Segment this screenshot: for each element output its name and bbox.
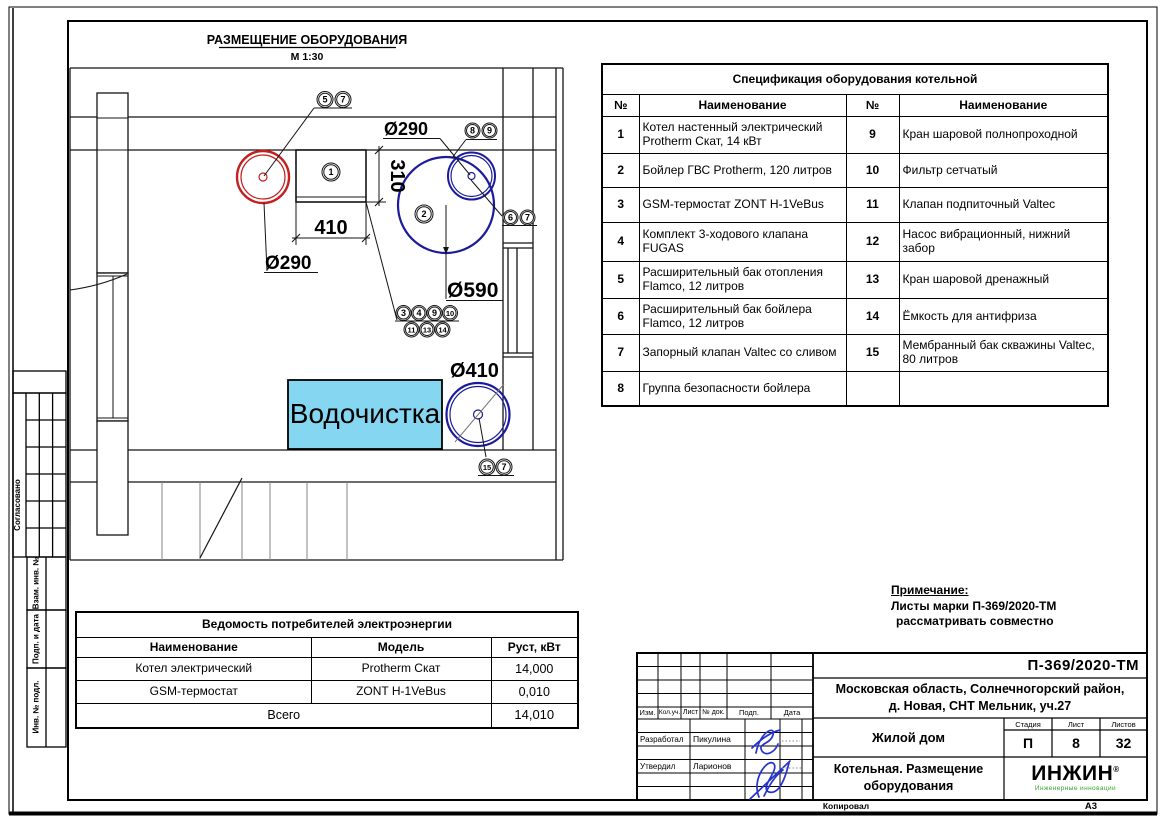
spec-table-header-row: № Наименование № Наименование — [602, 95, 1108, 117]
spec-col-num2: № — [846, 95, 899, 117]
logo-text: ИНЖИН — [1031, 762, 1113, 785]
balloon-label: 3 — [401, 308, 406, 318]
format-label: А3 — [1076, 801, 1106, 812]
developed-name: Пикулина — [690, 733, 744, 746]
spec-table-title: Спецификация оборудования котельной — [602, 64, 1108, 95]
rev-col-doc: № док. — [700, 707, 727, 719]
spec-num: 14 — [846, 299, 899, 335]
rev-col-koluch: Кол.уч. — [658, 707, 681, 719]
spec-num: 5 — [602, 262, 639, 299]
copied-label: Копировал — [796, 801, 896, 812]
balloon-label: 14 — [438, 326, 447, 335]
approved-label: Утвердил — [638, 760, 689, 773]
stairs — [162, 478, 347, 560]
balloon-label: 2 — [421, 209, 426, 219]
strip-label-soglasovano: Согласовано — [13, 479, 22, 531]
spec-num: 10 — [846, 154, 899, 188]
balloon-label: 7 — [340, 95, 345, 105]
table-row: 3GSM-термостат ZONT H-1VeBus11Клапан под… — [602, 188, 1108, 223]
note-title: Примечание: — [891, 583, 1121, 599]
spec-name: Расширительный бак бойлера Flamco, 12 ли… — [639, 299, 846, 335]
project-address: Московская область, Солнечногорский райо… — [813, 681, 1147, 715]
doc-number: П-369/2020-ТМ — [813, 655, 1139, 677]
power-col-model: Модель — [311, 638, 491, 658]
object-name: Жилой дом — [813, 718, 1004, 757]
plan-columns — [70, 93, 128, 535]
address-line-1: Московская область, Солнечногорский райо… — [836, 682, 1125, 696]
power-kw: 0,010 — [491, 681, 578, 704]
note-block: Примечание: Листы марки П-369/2020-ТМ ра… — [891, 583, 1121, 630]
spec-num: 7 — [602, 335, 639, 372]
spec-name: Запорный клапан Valtec со сливом — [639, 335, 846, 372]
spec-name: Фильтр сетчатый — [899, 154, 1108, 188]
plan-scale: М 1:30 — [291, 51, 324, 63]
dim-d290-top: Ø290 — [384, 119, 428, 139]
stage-value: П — [1004, 730, 1052, 757]
spec-num: 4 — [602, 223, 639, 262]
sheet-title-line-2: оборудования — [864, 779, 954, 793]
table-row: Котел электрический Protherm Скат 14,000 — [76, 658, 578, 681]
spec-num: 6 — [602, 299, 639, 335]
plan-title: РАЗМЕЩЕНИЕ ОБОРУДОВАНИЯ — [207, 33, 408, 47]
sheet-number: 8 — [1052, 730, 1100, 757]
strip-label-inv: Инв. № подл. — [32, 680, 41, 733]
spec-name: Клапан подпиточный Valtec — [899, 188, 1108, 223]
spec-col-name1: Наименование — [639, 95, 846, 117]
dim-d590: Ø590 — [447, 279, 498, 302]
signature-approved — [750, 761, 790, 799]
signature-developed — [752, 730, 780, 754]
rev-col-izm: Изм. — [637, 707, 658, 719]
power-col-kw: Руст, кВт — [491, 638, 578, 658]
balloon-label: 10 — [446, 309, 454, 318]
red-tank-circle — [237, 151, 289, 203]
balloon-label: 11 — [408, 326, 416, 335]
balloon-label: 8 — [470, 126, 475, 136]
spec-num: 13 — [846, 262, 899, 299]
balloon-label: 13 — [423, 326, 431, 335]
spec-name: Группа безопасности бойлера — [639, 372, 846, 407]
power-table-title: Ведомость потребителей электроэнергии — [76, 612, 578, 638]
power-table-header-row: Наименование Модель Руст, кВт — [76, 638, 578, 658]
spec-name: Ёмкость для антифриза — [899, 299, 1108, 335]
table-row: 7Запорный клапан Valtec со сливом15Мембр… — [602, 335, 1108, 372]
spec-num — [846, 372, 899, 407]
note-line-1: Листы марки П-369/2020-ТМ — [891, 599, 1121, 615]
balloon-label: 4 — [416, 308, 421, 318]
spec-num: 2 — [602, 154, 639, 188]
spec-num: 3 — [602, 188, 639, 223]
sheets-label: Листов — [1100, 719, 1147, 731]
strip-label-vzam: Взам. инв. № — [32, 557, 41, 610]
power-total-label: Всего — [76, 704, 491, 729]
stage-label: Стадия — [1004, 719, 1052, 731]
spec-name: Насос вибрационный, нижний забор — [899, 223, 1108, 262]
dim-d290-left: Ø290 — [265, 253, 311, 274]
company-logo: ИНЖИН® Инженерные инновации — [1004, 759, 1147, 800]
table-row: GSM-термостат ZONT H-1VeBus 0,010 — [76, 681, 578, 704]
power-kw: 14,000 — [491, 658, 578, 681]
spec-num: 15 — [846, 335, 899, 372]
table-row: 2Бойлер ГВС Protherm, 120 литров10Фильтр… — [602, 154, 1108, 188]
spec-name — [899, 372, 1108, 407]
signature-date-marks — [782, 741, 801, 768]
spec-name: GSM-термостат ZONT H-1VeBus — [639, 188, 846, 223]
water-treatment-label: Водочистка — [290, 398, 441, 429]
power-col-name: Наименование — [76, 638, 311, 658]
logo-subtitle: Инженерные инновации — [1004, 785, 1147, 793]
spec-name: Кран шаровой полнопроходной — [899, 117, 1108, 154]
water-treatment-box: Водочистка — [288, 380, 442, 449]
spec-name: Бойлер ГВС Protherm, 120 литров — [639, 154, 846, 188]
dim-310: 310 — [386, 159, 408, 192]
table-row: 5Расширительный бак отопления Flamco, 12… — [602, 262, 1108, 299]
balloon-label: 5 — [322, 95, 327, 105]
dim-d410: Ø410 — [450, 360, 499, 382]
balloon-label: 15 — [483, 463, 491, 472]
power-table: Ведомость потребителей электроэнергии На… — [75, 611, 579, 729]
balloon-label: 9 — [487, 126, 492, 136]
tank-410-axis — [455, 384, 504, 442]
address-line-2: д. Новая, СНТ Мельник, уч.27 — [889, 699, 1071, 713]
spec-name: Котел настенный электрический Protherm С… — [639, 117, 846, 154]
sheet-label: Лист — [1052, 719, 1100, 731]
balloon-label: 6 — [508, 213, 513, 223]
power-name: GSM-термостат — [76, 681, 311, 704]
dim-410: 410 — [314, 217, 347, 239]
spec-col-num1: № — [602, 95, 639, 117]
power-total-value: 14,010 — [491, 704, 578, 729]
spec-num: 12 — [846, 223, 899, 262]
logo-wordmark: ИНЖИН® — [1004, 759, 1147, 785]
rev-col-data: Дата — [771, 707, 813, 719]
spec-col-name2: Наименование — [899, 95, 1108, 117]
signatures — [750, 730, 790, 799]
table-row: 8Группа безопасности бойлера — [602, 372, 1108, 407]
table-row: 4Комплект 3-ходового клапана FUGAS12Насо… — [602, 223, 1108, 262]
power-name: Котел электрический — [76, 658, 311, 681]
sheets-total: 32 — [1100, 730, 1147, 757]
spec-table-title-row: Спецификация оборудования котельной — [602, 64, 1108, 95]
spec-name: Мембранный бак скважины Valtec, 80 литро… — [899, 335, 1108, 372]
spec-num: 8 — [602, 372, 639, 407]
power-table-total-row: Всего 14,010 — [76, 704, 578, 729]
power-model: Protherm Скат — [311, 658, 491, 681]
sheet-title-line-1: Котельная. Размещение — [834, 762, 983, 776]
drawing-sheet: { "colors": { "red": "#c51f1f", "blue": … — [0, 0, 1166, 824]
spec-num: 9 — [846, 117, 899, 154]
spec-name: Кран шаровой дренажный — [899, 262, 1108, 299]
balloon-label: 9 — [432, 308, 437, 318]
spec-name: Расширительный бак отопления Flamco, 12 … — [639, 262, 846, 299]
rev-col-podp: Подп. — [727, 707, 771, 719]
spec-num: 1 — [602, 117, 639, 154]
registered-mark-icon: ® — [1113, 765, 1119, 774]
power-table-title-row: Ведомость потребителей электроэнергии — [76, 612, 578, 638]
balloon-label: 7 — [525, 213, 530, 223]
balloon-label: 1 — [328, 167, 333, 177]
balloon-label: 7 — [501, 462, 506, 472]
approved-name: Ларионов — [690, 760, 744, 773]
note-line-2: рассматривать совместно — [891, 614, 1121, 630]
spec-table: Спецификация оборудования котельной № На… — [601, 63, 1109, 407]
spec-num: 11 — [846, 188, 899, 223]
strip-label-podp: Подп. и дата — [32, 613, 41, 663]
plan-walls — [70, 68, 563, 560]
sheet-title: Котельная. Размещение оборудования — [813, 759, 1004, 800]
plan-title-group: РАЗМЕЩЕНИЕ ОБОРУДОВАНИЯ М 1:30 — [207, 33, 408, 63]
blue-tank-small — [448, 153, 495, 200]
rev-col-list: Лист — [681, 707, 700, 719]
table-row: 1Котел настенный электрический Protherm … — [602, 117, 1108, 154]
table-row: 6Расширительный бак бойлера Flamco, 12 л… — [602, 299, 1108, 335]
developed-label: Разработал — [638, 733, 689, 746]
power-model: ZONT H-1VeBus — [311, 681, 491, 704]
spec-name: Комплект 3-ходового клапана FUGAS — [639, 223, 846, 262]
